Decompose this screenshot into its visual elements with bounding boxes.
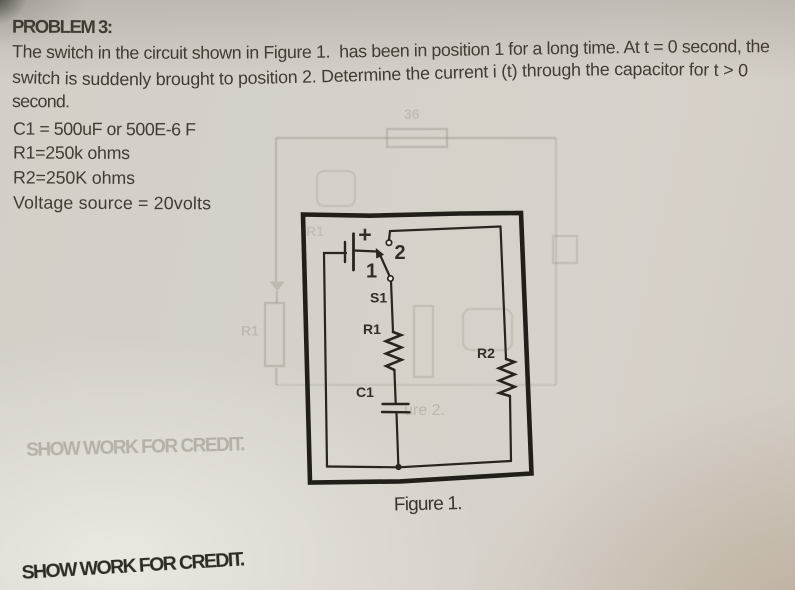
svg-text:C1 = 500uF or 500E-6 F: C1 = 500uF or 500E-6 F — [13, 119, 196, 140]
svg-text:36: 36 — [404, 106, 420, 122]
svg-text:+: + — [358, 222, 371, 248]
svg-text:PROBLEM 3:: PROBLEM 3: — [12, 16, 113, 38]
svg-text:R1: R1 — [306, 223, 324, 239]
svg-text:switch is suddenly brought to: switch is suddenly brought to position 2… — [12, 59, 749, 89]
svg-text:R2: R2 — [477, 345, 495, 361]
svg-text:R1: R1 — [363, 321, 381, 337]
svg-text:R2=250K ohms: R2=250K ohms — [13, 167, 135, 188]
svg-text:Voltage source = 20volts: Voltage source = 20volts — [13, 193, 211, 214]
svg-text:C1: C1 — [356, 384, 374, 400]
svg-text:1: 1 — [366, 261, 377, 283]
svg-text:R1: R1 — [241, 323, 259, 339]
svg-text:second.: second. — [12, 91, 70, 111]
svg-text:ure 2.: ure 2. — [404, 402, 445, 419]
svg-text:S1: S1 — [370, 290, 387, 306]
svg-text:R1=250k ohms: R1=250k ohms — [13, 143, 130, 164]
svg-text:Figure 1.: Figure 1. — [394, 493, 462, 515]
svg-text:2: 2 — [395, 242, 406, 264]
svg-text:The switch in the circuit show: The switch in the circuit shown in Figur… — [12, 36, 770, 63]
